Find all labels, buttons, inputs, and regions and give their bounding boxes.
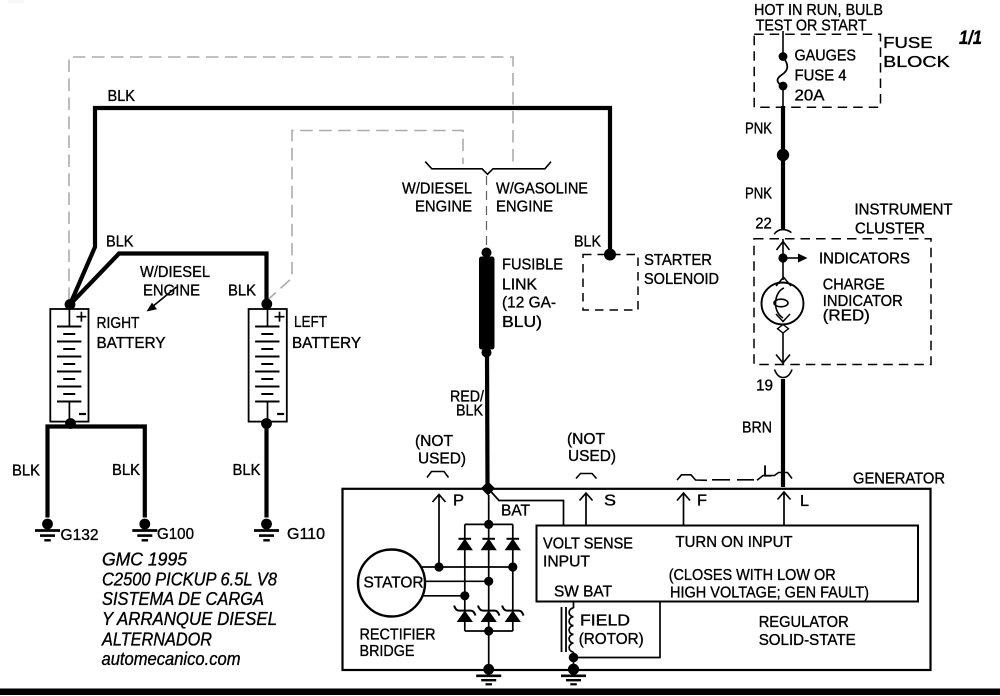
svg-text:S: S [604,493,616,510]
svg-text:(NOT: (NOT [415,433,453,450]
svg-text:F: F [697,493,707,510]
svg-text:BLOCK: BLOCK [883,54,950,71]
svg-text:ENGINE: ENGINE [415,199,472,216]
svg-text:automecanico.com: automecanico.com [102,648,241,669]
svg-text:SOLID-STATE: SOLID-STATE [759,632,856,649]
svg-text:W/GASOLINE: W/GASOLINE [496,181,588,198]
svg-text:BLK: BLK [112,462,140,479]
svg-text:GMC 1995: GMC 1995 [102,549,188,570]
svg-text:L: L [763,464,772,481]
svg-text:BLK: BLK [12,463,40,480]
svg-text:BRN: BRN [742,420,772,437]
svg-text:INDICATORS: INDICATORS [819,251,910,268]
svg-text:PNK: PNK [745,121,772,138]
svg-text:CLUSTER: CLUSTER [855,221,925,238]
svg-text:RIGHT: RIGHT [97,315,140,332]
svg-text:BLU): BLU) [502,314,542,331]
svg-text:(NOT: (NOT [567,431,605,448]
svg-text:FUSE: FUSE [883,35,933,52]
svg-text:STATOR: STATOR [364,575,424,592]
svg-text:(RED): (RED) [823,308,870,325]
svg-text:HOT IN RUN, BULB: HOT IN RUN, BULB [754,2,883,19]
svg-text:C2500 PICKUP 6.5L V8: C2500 PICKUP 6.5L V8 [102,568,278,589]
svg-text:SISTEMA DE CARGA: SISTEMA DE CARGA [102,588,264,609]
svg-text:BATTERY: BATTERY [97,335,166,352]
svg-text:(ROTOR): (ROTOR) [579,631,644,648]
svg-text:VOLT SENSE: VOLT SENSE [543,536,633,553]
svg-text:FUSE 4: FUSE 4 [795,68,847,85]
svg-text:LEFT: LEFT [294,314,327,331]
svg-text:P: P [453,493,464,510]
svg-text:BLK: BLK [233,462,261,479]
svg-text:G132: G132 [61,527,99,544]
svg-text:ENGINE: ENGINE [143,283,200,300]
svg-text:GENERATOR: GENERATOR [853,471,945,488]
svg-text:REGULATOR: REGULATOR [759,614,849,631]
svg-text:W/DIESEL: W/DIESEL [402,181,472,198]
svg-text:1/1: 1/1 [959,28,982,49]
svg-text:USED): USED) [568,448,616,465]
svg-text:L: L [800,493,809,510]
svg-text:HIGH VOLTAGE; GEN FAULT): HIGH VOLTAGE; GEN FAULT) [670,585,869,602]
svg-text:LINK: LINK [502,277,537,294]
svg-text:ALTERNADOR: ALTERNADOR [101,628,212,649]
svg-text:ENGINE: ENGINE [496,199,553,216]
svg-text:BLK: BLK [456,403,483,420]
svg-text:(CLOSES WITH LOW OR: (CLOSES WITH LOW OR [669,567,836,584]
svg-text:BLK: BLK [108,88,136,105]
svg-text:22: 22 [755,216,772,233]
svg-text:STARTER: STARTER [644,252,712,269]
svg-text:SOLENOID: SOLENOID [644,271,719,288]
svg-text:BLK: BLK [574,234,601,251]
svg-text:GAUGES: GAUGES [795,48,857,65]
svg-text:PNK: PNK [745,186,772,203]
svg-text:USED): USED) [418,451,466,468]
svg-text:G100: G100 [157,526,194,543]
svg-text:BAT: BAT [501,503,530,520]
svg-text:G110: G110 [287,526,325,543]
svg-text:(12 GA-: (12 GA- [502,295,556,312]
svg-text:INPUT: INPUT [543,554,590,571]
svg-text:BRIDGE: BRIDGE [360,643,415,660]
svg-text:RECTIFIER: RECTIFIER [360,627,436,644]
svg-text:BATTERY: BATTERY [292,335,361,352]
svg-text:W/DIESEL: W/DIESEL [140,264,210,281]
svg-text:INSTRUMENT: INSTRUMENT [855,202,953,219]
svg-text:SW BAT: SW BAT [554,584,612,601]
svg-text:TEST OR START: TEST OR START [756,18,867,35]
svg-text:FIELD: FIELD [580,613,630,630]
svg-text:BLK: BLK [228,283,256,300]
svg-text:FUSIBLE: FUSIBLE [502,257,563,274]
svg-text:CHARGE: CHARGE [823,277,885,294]
svg-text:TURN ON INPUT: TURN ON INPUT [676,534,793,551]
svg-text:Y ARRANQUE DIESEL: Y ARRANQUE DIESEL [102,608,277,629]
svg-text:19: 19 [756,378,773,395]
svg-text:BLK: BLK [106,234,134,251]
svg-text:20A: 20A [795,88,825,105]
